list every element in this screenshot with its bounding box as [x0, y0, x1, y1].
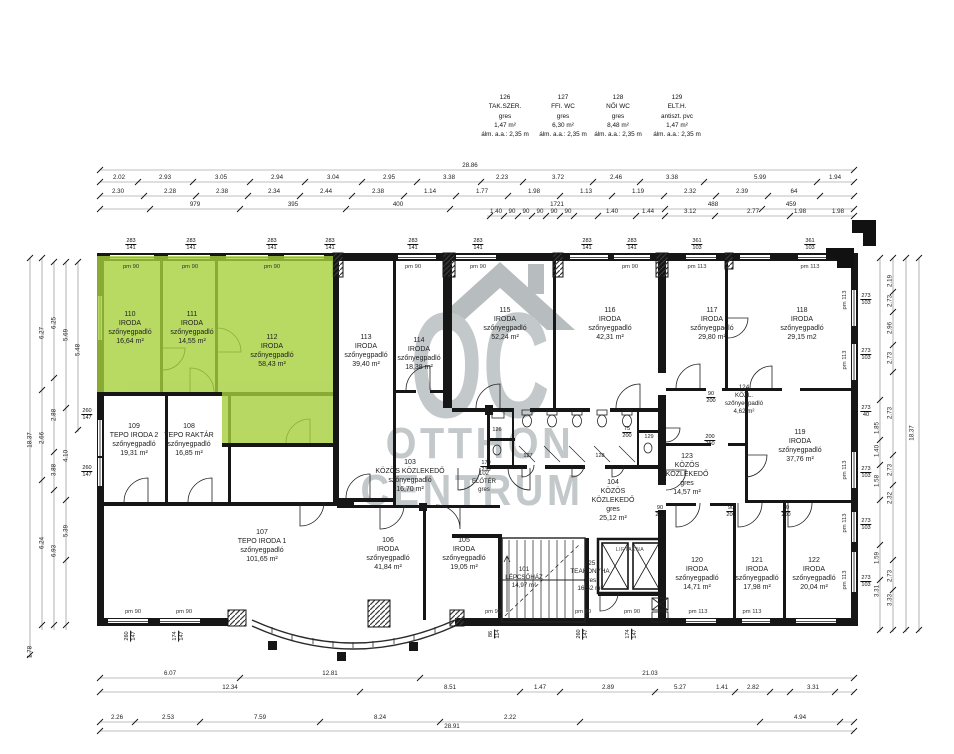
legend-height: álm. a.a.: 2,35 m [645, 130, 709, 139]
legend-room-name: ELT.H. [645, 102, 709, 111]
room-number: 114 [392, 336, 446, 345]
dimension-value: 3.05 [215, 174, 227, 181]
window-height: 103 [860, 355, 871, 361]
dimension-value: 2.73 [887, 464, 894, 476]
dimension-value: 6.27 [39, 327, 46, 339]
window-size-mark: 283141 [626, 238, 637, 252]
window-width: 260 [124, 630, 131, 641]
window-size-mark: 273103 [860, 518, 871, 532]
door-mark-pm90: pm 90 [405, 264, 421, 270]
dimension-value: 1721 [550, 201, 564, 208]
room-type: IRODA [570, 315, 650, 324]
dimension-value: 488 [708, 201, 718, 208]
dimension-value: 2.88 [51, 409, 58, 421]
highlight-room-112-lower [222, 392, 333, 443]
room-number: 104 [588, 478, 638, 487]
room-number: 117 [682, 306, 742, 315]
dimension-value: 1.78 [27, 646, 34, 658]
dimension-value: 2.39 [736, 188, 748, 195]
room-type: LÉPCSŐHÁZ [489, 574, 559, 582]
window-width: 260 [81, 465, 92, 472]
legend-floor: antiszt. pvc [645, 112, 709, 121]
dimension-value: 1.40 [606, 208, 618, 215]
dimension-value: 3.72 [552, 174, 564, 181]
room-type: IRODA [336, 342, 396, 351]
room-label-114: 114IRODAszőnyegpadló18,38 m² [392, 336, 446, 372]
room-type: TEPO IRODA 2 [101, 431, 167, 440]
dimension-value: 2.30 [112, 188, 124, 195]
room-floor: szőnyegpadló [682, 324, 742, 333]
window-size-mark: 260147 [81, 465, 92, 479]
room-number: 106 [358, 536, 418, 545]
window-width: 283 [472, 238, 483, 245]
room-floor: gres [588, 505, 638, 514]
window-height: 103 [860, 300, 871, 306]
window-size-mark: 86114 [488, 630, 502, 639]
room-area: 101,65 m² [222, 555, 302, 564]
dimension-value: 5.27 [674, 684, 686, 691]
room-area: 14,57 m² [661, 488, 713, 497]
room-label-123: 123KÖZÖS KÖZLEKEDŐgres14,57 m² [661, 452, 713, 497]
door-width: 170 [480, 460, 491, 467]
window-size-mark: 273103 [860, 348, 871, 362]
dimension-value: 2.93 [159, 174, 171, 181]
room-area: 19,05 m² [434, 563, 494, 572]
dimension-value: 1.41 [716, 684, 728, 691]
room-number: 103 [364, 458, 456, 467]
room-type: ELŐTÉR [461, 479, 507, 487]
room-area: 29,15 m2 [772, 333, 832, 342]
room-floor: szőnyegpadló [152, 328, 232, 337]
dimension-value: 2.82 [747, 684, 759, 691]
room-area: 18,38 m² [392, 363, 446, 372]
window-height: 147 [132, 630, 138, 641]
window-size-mark: 283141 [266, 238, 277, 252]
dimension-value: 90 [509, 208, 516, 215]
room-label-112: 112IRODAszőnyegpadló58,43 m² [232, 333, 312, 369]
door-width: 200 [704, 434, 715, 441]
door-mark-pm113: pm 113 [842, 571, 848, 590]
dimension-value: 1.98 [832, 208, 844, 215]
room-area: 19,31 m² [101, 449, 167, 458]
room-label-107: 107TEPO IRODA 1szőnyegpadló101,65 m² [222, 528, 302, 564]
room-floor: szőnyegpadló [788, 574, 840, 583]
window-size-mark: 273103 [860, 293, 871, 307]
dimension-value: 2.23 [496, 174, 508, 181]
dimension-value: 4.10 [63, 450, 70, 462]
room-label-106: 106IRODAszőnyegpadló41,84 m² [358, 536, 418, 572]
room-type: IRODA [765, 437, 835, 446]
room-area: 14,55 m² [152, 337, 232, 346]
legend-room-name: TAK.SZER. [473, 102, 537, 111]
room-floor: szőnyegpadló [465, 324, 545, 333]
window-size-mark: 283141 [407, 238, 418, 252]
room-floor: szőnyegpadló [434, 554, 494, 563]
dimension-value: 3.38 [666, 174, 678, 181]
legend-number: 128 [586, 93, 650, 102]
room-area: 42,31 m² [570, 333, 650, 342]
dimension-total-top: 28.86 [462, 162, 477, 169]
window-height: 141 [125, 245, 136, 251]
dimension-value: 2.22 [504, 714, 516, 721]
window-size-mark: 174147 [625, 628, 639, 639]
room-number: 118 [772, 306, 832, 315]
room-floor: szőnyegpadló [731, 574, 783, 583]
window-width: 273 [860, 405, 871, 412]
window-size-mark: 283141 [125, 238, 136, 252]
dimension-value: 2.73 [887, 295, 894, 307]
dimension-value: 2.19 [887, 275, 894, 287]
door-mark-pm90: pm 90 [575, 609, 591, 615]
room-type: KÖZÖS KÖZLEKEDŐ [588, 487, 638, 505]
dimension-value: 1.85 [874, 422, 881, 434]
lift-shaft-label: LIFTAKNA [616, 547, 644, 553]
window-size-mark: 283141 [581, 238, 592, 252]
door-width: 90 [726, 505, 735, 512]
door-height: 200 [655, 512, 664, 518]
door-size-mark: 75200 [622, 426, 631, 440]
room-type: IRODA [232, 342, 312, 351]
window-height: 141 [472, 245, 483, 251]
dimension-value: 2.38 [372, 188, 384, 195]
door-size-mark: 200250 [704, 434, 715, 448]
dimension-value: 1.47 [534, 684, 546, 691]
room-label-113: 113IRODAszőnyegpadló39,40 m² [336, 333, 396, 369]
door-width: 75 [622, 426, 631, 433]
dimension-value: 2.28 [164, 188, 176, 195]
dimension-value: 2.46 [610, 174, 622, 181]
window-width: 283 [626, 238, 637, 245]
legend-area: 8,48 m² [586, 121, 650, 130]
window-height: 147 [633, 628, 639, 639]
window-width: 273 [860, 348, 871, 355]
dimension-value: 1.40 [874, 445, 881, 457]
dimension-value: 1.44 [642, 208, 654, 215]
room-floor: szőnyegpadló [358, 554, 418, 563]
window-width: 283 [324, 238, 335, 245]
window-width: 273 [860, 575, 871, 582]
room-label-116: 116IRODAszőnyegpadló42,31 m² [570, 306, 650, 342]
room-type: IRODA [772, 315, 832, 324]
window-size-mark: 273103 [860, 575, 871, 589]
door-mark-pm113: pm 113 [688, 264, 707, 270]
room-floor: szőnyegpadló [392, 354, 446, 363]
room-label-101: 101LÉPCSŐHÁZ14,97 m² [489, 566, 559, 590]
room-area: 20,04 m² [788, 583, 840, 592]
dimension-value: 1.19 [632, 188, 644, 195]
room-number: 121 [731, 556, 783, 565]
dimension-value: 64 [791, 188, 798, 195]
legend-room-129: 129 ELT.H. antiszt. pvc 1,47 m² álm. a.a… [645, 93, 709, 139]
dimension-value: 21.03 [642, 670, 657, 677]
window-height: 103 [860, 473, 871, 479]
room-type: IRODA [152, 319, 232, 328]
room-type: IRODA [434, 545, 494, 554]
window-size-mark: 27340 [860, 405, 871, 419]
dimension-value: 1.13 [580, 188, 592, 195]
sanitary-room-number: 128 [595, 453, 604, 459]
legend-area: 1,47 m² [645, 121, 709, 130]
room-type: IRODA [788, 565, 840, 574]
window-height: 103 [860, 525, 871, 531]
dimension-value: 1.14 [424, 188, 436, 195]
room-type: IRODA [392, 345, 446, 354]
window-height: 114 [496, 630, 502, 639]
room-type: IRODA [670, 565, 724, 574]
room-floor: gres [661, 479, 713, 488]
window-size-mark: 361103 [691, 238, 702, 252]
dimension-value: 12.34 [222, 684, 237, 691]
dimension-value: 1.98 [528, 188, 540, 195]
door-mark-pm113: pm 113 [842, 461, 848, 480]
window-width: 273 [860, 293, 871, 300]
dimension-value: 1.58 [874, 475, 881, 487]
window-width: 361 [691, 238, 702, 245]
room-number: 116 [570, 306, 650, 315]
window-height: 103 [860, 582, 871, 588]
room-number: 122 [788, 556, 840, 565]
window-size-mark: 283141 [472, 238, 483, 252]
dimension-value: 1.59 [874, 552, 881, 564]
window-size-mark: 283141 [185, 238, 196, 252]
legend-room-128: 128 NŐI WC gres 8,48 m² álm. a.a.: 2,35 … [586, 93, 650, 139]
dimension-value: 2.73 [887, 570, 894, 582]
room-area: 52,24 m² [465, 333, 545, 342]
dimension-value: 1.77 [476, 188, 488, 195]
door-mark-pm113: pm 113 [689, 609, 708, 615]
door-height: 200 [622, 433, 631, 439]
dimension-value: 2.32 [684, 188, 696, 195]
dimension-value: 90 [537, 208, 544, 215]
door-size-mark: 170233 [480, 460, 491, 474]
window-width: 283 [185, 238, 196, 245]
dimension-value: 2.73 [887, 352, 894, 364]
room-floor: szőnyegpadló [713, 400, 775, 408]
door-mark-pm90: pm 90 [123, 264, 139, 270]
dimension-value: 3.88 [51, 464, 58, 476]
room-type: IRODA [465, 315, 545, 324]
window-width: 283 [266, 238, 277, 245]
dimension-value: 7.59 [254, 714, 266, 721]
room-type: KÖZÖS KÖZLEKEDŐ [364, 467, 456, 476]
room-floor: szőnyegpadló [364, 476, 456, 485]
window-width: 260 [576, 628, 583, 639]
door-size-mark: 90200 [706, 391, 715, 405]
dimension-value: 18.37 [27, 432, 34, 447]
legend-floor: gres [473, 112, 537, 121]
curved-facade [252, 620, 455, 649]
room-area: 14,97 m² [489, 582, 559, 590]
dimension-value: 2.26 [111, 714, 123, 721]
door-mark-pm113: pm 113 [743, 609, 762, 615]
room-label-121: 121IRODAszőnyegpadló17,98 m² [731, 556, 783, 592]
room-floor: szőnyegpadló [570, 324, 650, 333]
room-floor: szőnyegpadló [222, 546, 302, 555]
window-height: 141 [324, 245, 335, 251]
window-width: 361 [804, 238, 815, 245]
door-mark-pm113: pm 113 [842, 514, 848, 533]
room-type: TEAKONYHA [555, 568, 625, 576]
window-width: 273 [860, 466, 871, 473]
dimension-value: 6.25 [51, 317, 58, 329]
dimension-value: 2.89 [602, 684, 614, 691]
dimension-value: 8.24 [374, 714, 386, 721]
window-height: 147 [180, 630, 186, 641]
door-mark-pm90: pm 90 [182, 264, 198, 270]
room-floor: gres [555, 577, 625, 585]
room-number: 115 [465, 306, 545, 315]
room-number: 123 [661, 452, 713, 461]
window-width: 283 [581, 238, 592, 245]
window-width: 283 [407, 238, 418, 245]
room-area: 37,76 m² [765, 455, 835, 464]
legend-area: 1,47 m² [473, 121, 537, 130]
door-height: 200 [781, 512, 790, 518]
room-number: 107 [222, 528, 302, 537]
room-floor: szőnyegpadló [772, 324, 832, 333]
dimension-value: 5.48 [75, 344, 82, 356]
room-label-104: 104KÖZÖS KÖZLEKEDŐgres25,12 m² [588, 478, 638, 523]
window-size-mark: 273103 [860, 466, 871, 480]
door-mark-pm90: pm 90 [176, 609, 192, 615]
window-size-mark: 283141 [324, 238, 335, 252]
dimension-value: 2.32 [887, 492, 894, 504]
room-label-102: 102ELŐTÉRgres [461, 471, 507, 494]
room-label-124: 124KÖZL.szőnyegpadló4,62 m² [713, 384, 775, 416]
room-number: 105 [434, 536, 494, 545]
dimension-value: 2.44 [320, 188, 332, 195]
dimension-value: 5.69 [63, 329, 70, 341]
dimension-value: 400 [393, 201, 403, 208]
room-number: 120 [670, 556, 724, 565]
door-size-mark: 90200 [655, 505, 664, 519]
room-label-109: 109TEPO IRODA 2szőnyegpadló19,31 m² [101, 422, 167, 458]
window-height: 141 [185, 245, 196, 251]
window-height: 147 [584, 628, 590, 639]
room-label-111: 111IRODAszőnyegpadló14,55 m² [152, 310, 232, 346]
dimension-value: 3.38 [443, 174, 455, 181]
dimension-value: 1.40 [490, 208, 502, 215]
dimension-value: 2.38 [216, 188, 228, 195]
room-label-105: 105IRODAszőnyegpadló19,05 m² [434, 536, 494, 572]
room-floor: szőnyegpadló [765, 446, 835, 455]
dimension-value: 5.39 [63, 525, 70, 537]
room-area: 41,84 m² [358, 563, 418, 572]
door-width: 90 [706, 391, 715, 398]
door-width: 90 [655, 505, 664, 512]
dimension-value: 3.33 [887, 594, 894, 606]
door-mark-pm90: pm 90 [470, 264, 486, 270]
dimension-value: 2.94 [271, 174, 283, 181]
door-mark-pm113: pm 113 [842, 351, 848, 370]
door-size-mark: 90200 [781, 505, 790, 519]
room-label-103: 103KÖZÖS KÖZLEKEDŐszőnyegpadló16,70 m² [364, 458, 456, 494]
window-width: 260 [81, 408, 92, 415]
room-area: 14,71 m² [670, 583, 724, 592]
room-label-115: 115IRODAszőnyegpadló52,24 m² [465, 306, 545, 342]
room-number: 119 [765, 428, 835, 437]
room-number: 112 [232, 333, 312, 342]
room-area: 17,98 m² [731, 583, 783, 592]
dimension-value: 2.73 [887, 407, 894, 419]
room-label-119: 119IRODAszőnyegpadló37,76 m² [765, 428, 835, 464]
door-mark-pm90: pm 90 [624, 609, 640, 615]
legend-room-126: 126 TAK.SZER. gres 1,47 m² álm. a.a.: 2,… [473, 93, 537, 139]
door-mark-pm113: pm 113 [842, 291, 848, 310]
room-number: 101 [489, 566, 559, 574]
window-width: 174 [172, 630, 179, 641]
dimension-value: 6.24 [39, 537, 46, 549]
room-area: 39,40 m² [336, 360, 396, 369]
room-floor: szőnyegpadló [670, 574, 724, 583]
room-number: 109 [101, 422, 167, 431]
legend-height: álm. a.a.: 2,35 m [586, 130, 650, 139]
dimension-value: 4.94 [794, 714, 806, 721]
dimension-value: 459 [786, 201, 796, 208]
legend-number: 126 [473, 93, 537, 102]
room-label-118: 118IRODAszőnyegpadló29,15 m2 [772, 306, 832, 342]
window-height: 141 [626, 245, 637, 251]
dimension-value: 2.95 [383, 174, 395, 181]
sanitary-room-number: 127 [523, 453, 532, 459]
window-height: 40 [860, 412, 871, 418]
washbasin [644, 443, 652, 453]
door-height: 200 [726, 512, 735, 518]
window-size-mark: 174147 [172, 630, 186, 641]
room-number: 113 [336, 333, 396, 342]
window-width: 174 [625, 628, 632, 639]
dimension-value: 90 [523, 208, 530, 215]
dimension-value: 2.02 [113, 174, 125, 181]
door-mark-pm90: pm 90 [622, 264, 638, 270]
window-width: 86 [488, 630, 495, 639]
room-area: 58,43 m² [232, 360, 312, 369]
window-height: 147 [81, 415, 92, 421]
room-number: 124 [713, 384, 775, 392]
room-floor: gres [461, 487, 507, 495]
room-area: 4,62 m² [713, 408, 775, 416]
dimension-value: 1.94 [829, 174, 841, 181]
room-floor: szőnyegpadló [101, 440, 167, 449]
legend-height: álm. a.a.: 2,35 m [473, 130, 537, 139]
legend-room-name: NŐI WC [586, 102, 650, 111]
room-type: KÖZÖS KÖZLEKEDŐ [661, 461, 713, 479]
dimension-value: 3.12 [684, 208, 696, 215]
window-size-mark: 260147 [81, 408, 92, 422]
door-height: 200 [706, 398, 715, 404]
room-area: 16,70 m² [364, 485, 456, 494]
dimension-value: 395 [288, 201, 298, 208]
dimension-value: 2.34 [268, 188, 280, 195]
room-label-122: 122IRODAszőnyegpadló20,04 m² [788, 556, 840, 592]
dimension-value: 2.77 [747, 208, 759, 215]
dimension-value: 5.99 [754, 174, 766, 181]
window-height: 141 [581, 245, 592, 251]
dimension-value: 12.81 [322, 670, 337, 677]
floor-plan-screenshot: OC OTTHON CENTRUM [0, 0, 954, 754]
door-mark-pm90: pm 90 [125, 609, 141, 615]
sanitary-room-number: 126 [492, 427, 501, 433]
dimension-value: 90 [551, 208, 558, 215]
dimension-value: 2.96 [887, 322, 894, 334]
dimension-total-bottom: 28.91 [444, 723, 459, 730]
room-area: 29,80 m² [682, 333, 742, 342]
window-height: 141 [407, 245, 418, 251]
room-floor: szőnyegpadló [336, 351, 396, 360]
door-height: 233 [480, 467, 491, 473]
room-area: 25,12 m² [588, 514, 638, 523]
legend-floor: gres [586, 112, 650, 121]
